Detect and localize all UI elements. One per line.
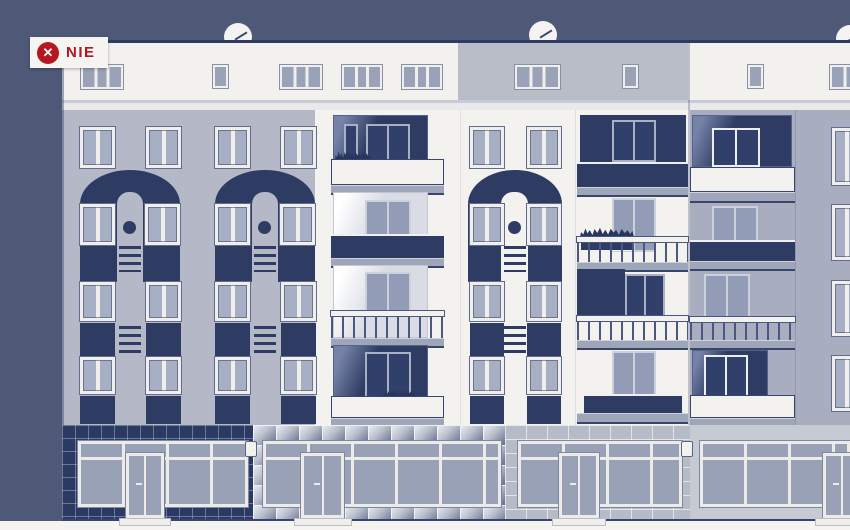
vent-slats (504, 326, 526, 353)
facade-joint-line (460, 110, 461, 425)
window (146, 357, 181, 394)
attic-band-gray (458, 43, 688, 100)
window (281, 357, 316, 394)
balcony-door (712, 128, 760, 167)
door-step (119, 518, 171, 526)
window (281, 282, 316, 321)
balcony-slab (690, 192, 795, 203)
window (80, 282, 115, 321)
attic-window (342, 65, 382, 89)
balcony-door (704, 355, 748, 398)
window (146, 127, 181, 168)
vent-slats (254, 246, 276, 272)
building-base-line (62, 519, 850, 521)
spandrel-panel (470, 396, 504, 424)
x-circle-icon: ✕ (37, 42, 59, 64)
window (80, 204, 115, 245)
illustration-canvas: ✕ NIE (0, 0, 850, 530)
balcony-parapet (690, 167, 795, 192)
attic-window (402, 65, 442, 89)
window (80, 127, 115, 168)
attic-window (515, 65, 560, 89)
balcony-door (366, 124, 410, 164)
balcony-door (612, 351, 656, 400)
facade-joint-line (575, 110, 576, 425)
balcony-door (704, 274, 750, 318)
balcony-door (625, 274, 665, 318)
nie-badge-label: NIE (66, 44, 96, 61)
window (281, 127, 316, 168)
balcony-door (612, 120, 656, 162)
shop-door (823, 453, 850, 518)
arch-medallion (258, 221, 271, 234)
shopfront-glazing (263, 441, 501, 507)
window (832, 205, 850, 260)
balcony-parapet (690, 395, 795, 418)
attic-window (623, 65, 638, 88)
door-step (294, 518, 352, 526)
nie-badge: ✕ NIE (30, 37, 108, 68)
window (215, 282, 250, 321)
arch-medallion (123, 221, 136, 234)
vent-slats (119, 246, 141, 272)
balcony-railing (331, 234, 444, 260)
shop-door (559, 453, 599, 518)
attic-window (81, 65, 123, 89)
shop-door (126, 453, 164, 518)
vent-slats (254, 326, 276, 353)
cornice-ledge (62, 103, 850, 110)
window (470, 204, 504, 245)
shopfront-glazing (518, 441, 682, 507)
balcony-railing (577, 162, 688, 189)
door-step (552, 518, 606, 526)
spandrel-panel (215, 323, 250, 357)
attic-window (830, 65, 850, 89)
window (832, 128, 850, 185)
attic-window (280, 65, 322, 89)
window (470, 282, 504, 321)
shop-door (301, 453, 344, 518)
spandrel-panel (281, 323, 316, 357)
window (527, 282, 561, 321)
window (832, 281, 850, 336)
balcony-railing (331, 317, 444, 338)
spandrel-panel (527, 323, 561, 357)
window (280, 204, 315, 245)
balcony-railing (584, 394, 682, 415)
spandrel-panel (146, 396, 181, 424)
window (470, 127, 504, 168)
window (215, 127, 250, 168)
balcony-slab (577, 340, 688, 350)
spandrel-panel (527, 396, 561, 424)
spandrel-panel (215, 396, 250, 424)
spandrel-panel (470, 323, 504, 357)
spandrel-panel (80, 323, 115, 357)
wall-lamp (245, 441, 257, 457)
balcony-railing (577, 322, 688, 340)
spandrel-panel (80, 396, 115, 424)
balcony-parapet (331, 159, 444, 185)
window (146, 282, 181, 321)
window (470, 357, 504, 394)
spandrel-panel (281, 396, 316, 424)
attic-band-white-right (688, 43, 850, 100)
window (832, 356, 850, 411)
vent-slats (119, 326, 141, 353)
attic-window (213, 65, 228, 88)
balcony-railing (577, 243, 688, 262)
door-step (815, 518, 850, 526)
window (215, 204, 250, 245)
arch-medallion (508, 221, 521, 234)
window (145, 204, 180, 245)
window (215, 357, 250, 394)
balcony-slab (690, 340, 795, 350)
window (527, 204, 561, 245)
balcony-slab (577, 187, 688, 197)
balcony-slab (577, 413, 688, 424)
attic-window (748, 65, 763, 88)
facade-joint-line (795, 110, 796, 425)
window (527, 357, 561, 394)
balcony-railing (690, 240, 795, 263)
vent-slats (504, 246, 526, 272)
window (80, 357, 115, 394)
wall-lamp (681, 441, 693, 457)
balcony-slab (690, 261, 795, 271)
balcony-back-wall (577, 269, 625, 317)
balcony-railing (690, 323, 795, 340)
window (527, 127, 561, 168)
spandrel-panel (146, 323, 181, 357)
balcony-parapet (331, 396, 444, 418)
